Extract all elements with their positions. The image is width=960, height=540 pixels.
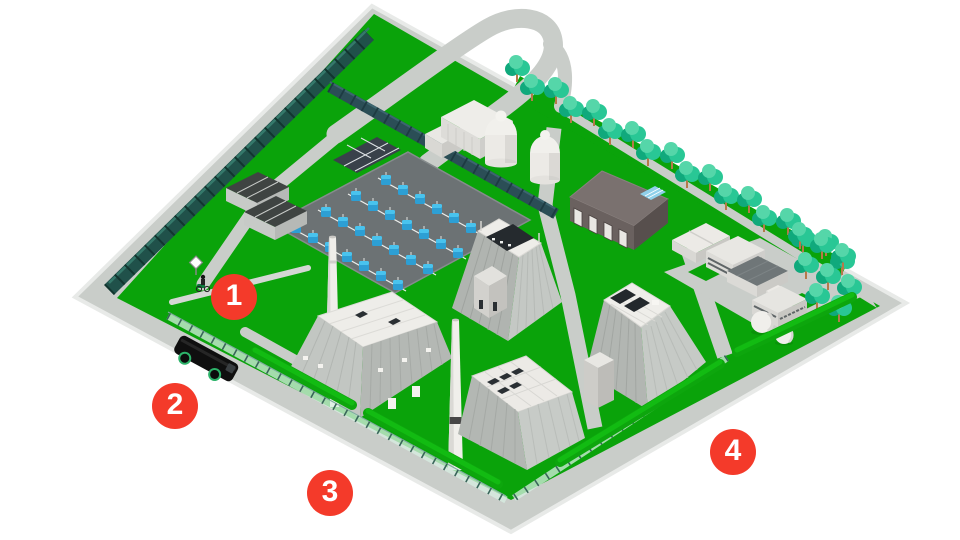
- marker-3-label: 3: [322, 477, 339, 507]
- marker-4-label: 4: [725, 436, 742, 466]
- marker-2-label: 2: [167, 390, 184, 420]
- site-illustration: [0, 0, 960, 540]
- elevator-tower: [584, 352, 614, 408]
- marker-3[interactable]: 3: [307, 470, 353, 516]
- marker-1-label: 1: [226, 281, 243, 311]
- power-plant-site-diagram: 1 2 3 4: [0, 0, 960, 540]
- boiler-annex: [474, 266, 507, 318]
- marker-1[interactable]: 1: [211, 274, 257, 320]
- marker-4[interactable]: 4: [710, 429, 756, 475]
- marker-2[interactable]: 2: [152, 383, 198, 429]
